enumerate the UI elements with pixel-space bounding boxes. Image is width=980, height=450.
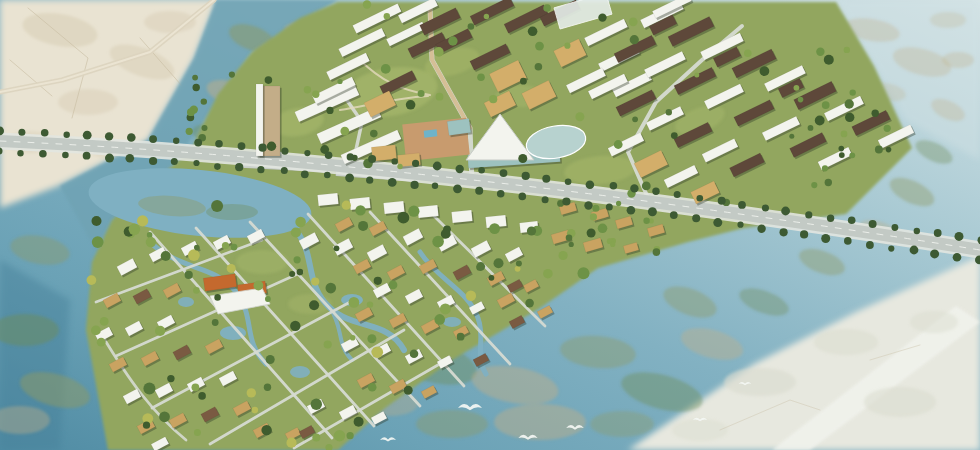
street-tree: [757, 225, 765, 233]
street-tree: [412, 160, 419, 167]
tree: [466, 291, 476, 301]
street-tree: [126, 154, 135, 163]
tree: [363, 0, 371, 8]
tree: [543, 269, 553, 279]
tree: [137, 215, 148, 226]
tree: [875, 146, 883, 154]
tree: [798, 97, 804, 103]
tree: [671, 132, 678, 139]
tree: [159, 411, 170, 422]
street-tree: [844, 237, 852, 245]
tree: [129, 224, 141, 236]
street-tree: [610, 182, 618, 190]
street-tree: [542, 175, 550, 183]
street-tree: [171, 158, 178, 165]
tree: [406, 100, 416, 110]
tree: [794, 85, 800, 91]
marsh-blob: [494, 404, 586, 440]
tree: [324, 340, 332, 348]
street-tree: [257, 166, 264, 173]
building: [317, 193, 338, 206]
tree: [87, 275, 97, 285]
street-tree: [388, 178, 397, 187]
tree: [515, 266, 521, 272]
tree: [264, 384, 271, 391]
street-tree: [713, 218, 722, 227]
street-tree: [149, 157, 157, 165]
street-tree: [83, 131, 92, 140]
street-tree: [674, 191, 681, 198]
marsh-blob: [290, 366, 310, 378]
street-tree: [281, 148, 288, 155]
tree: [760, 66, 770, 76]
tree: [397, 164, 402, 169]
marsh-blob: [443, 317, 461, 327]
marsh-blob: [178, 297, 194, 307]
street-tree: [411, 181, 419, 189]
street-tree: [149, 135, 157, 143]
tree: [489, 223, 500, 234]
tree: [227, 264, 236, 273]
tree: [347, 432, 354, 439]
tree: [312, 433, 320, 441]
tree: [436, 93, 444, 101]
street-tree: [953, 253, 962, 262]
street-tree: [194, 139, 202, 147]
tree: [252, 407, 259, 414]
tree: [389, 281, 398, 290]
tree: [789, 134, 794, 139]
tree: [92, 236, 104, 248]
tree: [518, 154, 527, 163]
tree: [304, 86, 311, 93]
tree: [354, 417, 364, 427]
tree: [211, 200, 223, 212]
tree: [489, 275, 495, 281]
tree: [845, 113, 854, 122]
tree: [254, 281, 264, 291]
tree: [629, 17, 638, 26]
tree: [188, 249, 200, 261]
tree: [632, 116, 638, 122]
tree: [839, 146, 845, 152]
marsh-blob: [910, 311, 958, 333]
street-tree: [392, 158, 398, 164]
tree: [372, 346, 384, 358]
tree: [297, 269, 304, 276]
tree: [744, 50, 752, 58]
tree: [418, 90, 425, 97]
street-tree: [737, 222, 743, 228]
tree: [326, 283, 337, 294]
tree: [653, 248, 661, 256]
tree: [146, 237, 156, 247]
street-tree: [105, 154, 114, 163]
tree: [266, 355, 275, 364]
tree: [212, 319, 219, 326]
street-tree: [193, 160, 199, 166]
tree: [839, 152, 845, 158]
tree: [367, 301, 373, 307]
tree: [816, 48, 824, 56]
tree: [841, 131, 848, 138]
tree: [91, 326, 101, 336]
street-tree: [805, 211, 812, 218]
tree: [267, 142, 276, 151]
tree: [193, 287, 200, 294]
tree: [616, 201, 621, 206]
tree: [566, 234, 573, 241]
tree: [564, 43, 570, 49]
tree: [811, 182, 817, 188]
tree: [381, 64, 391, 74]
street-tree: [500, 169, 508, 177]
tree: [286, 438, 296, 448]
marsh-blob: [930, 12, 966, 28]
tree: [666, 109, 672, 115]
tree: [694, 72, 699, 77]
street-tree: [259, 144, 267, 152]
marsh-blob: [416, 410, 488, 438]
street-tree: [606, 204, 613, 211]
tree: [100, 317, 109, 326]
tree: [822, 101, 830, 109]
street-tree: [762, 204, 769, 211]
street-tree: [562, 197, 570, 205]
street-tree: [697, 195, 704, 202]
tree: [350, 335, 356, 341]
tree: [822, 165, 828, 171]
street-tree: [368, 155, 376, 163]
street-tree: [780, 228, 788, 236]
tree: [578, 267, 590, 279]
street-tree: [366, 177, 373, 184]
tree: [97, 338, 106, 347]
street-tree: [215, 140, 223, 148]
tree: [384, 13, 390, 19]
street-tree: [827, 215, 834, 222]
street-tree: [63, 132, 69, 138]
street-tree: [39, 150, 47, 158]
tree: [214, 294, 221, 301]
tree: [355, 205, 365, 215]
tree: [587, 229, 596, 238]
street-tree: [105, 132, 113, 140]
street-tree: [325, 151, 333, 159]
marsh-blob: [590, 411, 654, 437]
street-tree: [304, 150, 310, 156]
tree: [202, 125, 208, 131]
street-tree: [18, 129, 25, 136]
building: [451, 210, 472, 223]
tree: [198, 392, 206, 400]
tree: [441, 229, 451, 239]
tree: [92, 216, 102, 226]
tree: [143, 383, 155, 395]
street-tree: [892, 224, 899, 231]
tree: [194, 245, 200, 251]
tree: [527, 226, 536, 235]
street-tree: [478, 167, 485, 174]
street-tree: [324, 172, 331, 179]
street-tree: [475, 187, 483, 195]
tree: [342, 201, 351, 210]
street-tree: [497, 190, 505, 198]
tree: [884, 125, 891, 132]
street-tree: [910, 246, 919, 255]
tree: [192, 75, 198, 81]
tree: [535, 42, 544, 51]
tree: [849, 152, 855, 158]
street-tree: [584, 201, 592, 209]
street-tree: [433, 162, 442, 171]
tree: [598, 224, 608, 234]
tree: [334, 430, 345, 441]
tree: [569, 242, 574, 247]
building: [383, 201, 404, 214]
tree: [247, 388, 256, 397]
street-tree: [542, 196, 549, 203]
street-tree: [238, 142, 246, 150]
tree: [290, 321, 300, 331]
tree: [222, 242, 229, 249]
street-tree: [781, 207, 790, 216]
tree: [520, 78, 527, 85]
street-tree: [565, 178, 572, 185]
tree: [398, 212, 410, 224]
street-tree: [670, 211, 678, 219]
tree: [161, 251, 171, 261]
tree: [337, 79, 342, 84]
street-tree: [432, 183, 438, 189]
tree: [340, 127, 349, 136]
tree: [193, 84, 200, 91]
tree: [185, 271, 193, 279]
street-tree: [281, 167, 288, 174]
street-tree: [17, 150, 23, 156]
tree: [642, 182, 651, 191]
tree: [516, 261, 522, 267]
street-tree: [456, 165, 464, 173]
tree: [484, 14, 489, 19]
street-tree: [62, 152, 69, 159]
tree: [440, 303, 451, 314]
tree: [261, 425, 271, 435]
building: [447, 119, 471, 136]
street-tree: [41, 129, 49, 137]
tree: [187, 108, 195, 116]
tree: [367, 334, 376, 343]
tree: [155, 326, 165, 336]
street-tree: [127, 133, 136, 142]
street-tree: [586, 180, 595, 189]
tree: [457, 333, 465, 341]
tree: [590, 213, 597, 220]
tree: [432, 236, 444, 248]
tree: [312, 91, 319, 98]
rendering-canvas: [0, 0, 980, 450]
tree: [872, 110, 879, 117]
tree: [598, 13, 606, 21]
tree: [167, 375, 174, 382]
tree: [489, 95, 497, 103]
tree: [630, 35, 639, 44]
tree: [265, 76, 273, 84]
marsh-blob: [58, 89, 118, 115]
aerial-masterplan-rendering: [0, 0, 980, 450]
tree: [476, 262, 485, 271]
tree: [194, 429, 201, 436]
street-tree: [848, 217, 856, 225]
street-tree: [648, 207, 657, 216]
tree: [528, 27, 538, 37]
tree: [147, 232, 153, 238]
tree: [643, 218, 649, 224]
street-tree: [519, 193, 527, 201]
tree: [368, 383, 377, 392]
street-tree: [692, 214, 700, 222]
tree: [525, 299, 534, 308]
tree: [494, 258, 504, 268]
tree: [850, 89, 856, 95]
street-tree: [914, 228, 920, 234]
tree: [143, 422, 150, 429]
tree: [186, 128, 193, 135]
building: [417, 205, 438, 218]
street-tree: [522, 172, 530, 180]
tree: [192, 383, 200, 391]
street-tree: [934, 229, 942, 237]
tree: [295, 217, 306, 228]
street-tree: [214, 163, 221, 170]
street-tree: [453, 184, 462, 193]
tree: [559, 251, 568, 260]
tree: [229, 72, 235, 78]
street-tree: [866, 241, 874, 249]
street-tree: [869, 220, 877, 228]
tree: [201, 98, 207, 104]
tree: [265, 296, 271, 302]
tree: [349, 297, 360, 308]
marsh-blob: [814, 329, 878, 355]
plaza-pool: [424, 129, 438, 137]
tree: [334, 245, 340, 251]
tree: [434, 314, 445, 325]
tree: [592, 205, 599, 212]
tree: [404, 386, 413, 395]
street-tree: [738, 201, 746, 209]
street-tree: [173, 138, 179, 144]
tree: [410, 350, 419, 359]
tree: [815, 116, 825, 126]
marsh-blob: [724, 368, 796, 396]
tree: [374, 277, 382, 285]
tree: [231, 244, 238, 251]
street-tree: [821, 234, 830, 243]
tree: [825, 179, 832, 186]
tree: [358, 221, 368, 231]
street-tree: [652, 188, 659, 195]
street-tree: [345, 173, 354, 182]
street-tree: [888, 246, 894, 252]
tree: [434, 47, 444, 57]
tree: [824, 55, 834, 65]
tree: [575, 112, 584, 121]
tree: [311, 278, 319, 286]
tree: [468, 23, 475, 30]
tree: [370, 130, 378, 138]
marsh-blob: [864, 387, 936, 417]
street-tree: [301, 170, 309, 178]
street-tree: [627, 206, 636, 215]
tree: [844, 47, 850, 53]
street-tree: [718, 197, 726, 205]
tree: [477, 73, 485, 81]
tree: [886, 147, 892, 153]
tree: [610, 242, 615, 247]
street-tree: [630, 184, 638, 192]
tree: [543, 4, 551, 12]
street-tree: [955, 232, 964, 241]
tree: [294, 256, 301, 263]
tree: [326, 107, 333, 114]
street-tree: [83, 152, 91, 160]
tree: [408, 206, 419, 217]
street-tree: [930, 249, 939, 258]
tree: [448, 36, 457, 45]
street-tree: [800, 230, 808, 238]
tree: [291, 227, 301, 237]
tree: [808, 125, 814, 131]
tree: [309, 300, 319, 310]
tree: [311, 399, 322, 410]
scene-layers: [0, 0, 980, 450]
street-tree: [235, 163, 243, 171]
tree: [845, 99, 854, 108]
tree: [535, 63, 543, 71]
tree: [289, 271, 295, 277]
tree: [614, 140, 623, 149]
street-tree: [347, 153, 354, 160]
